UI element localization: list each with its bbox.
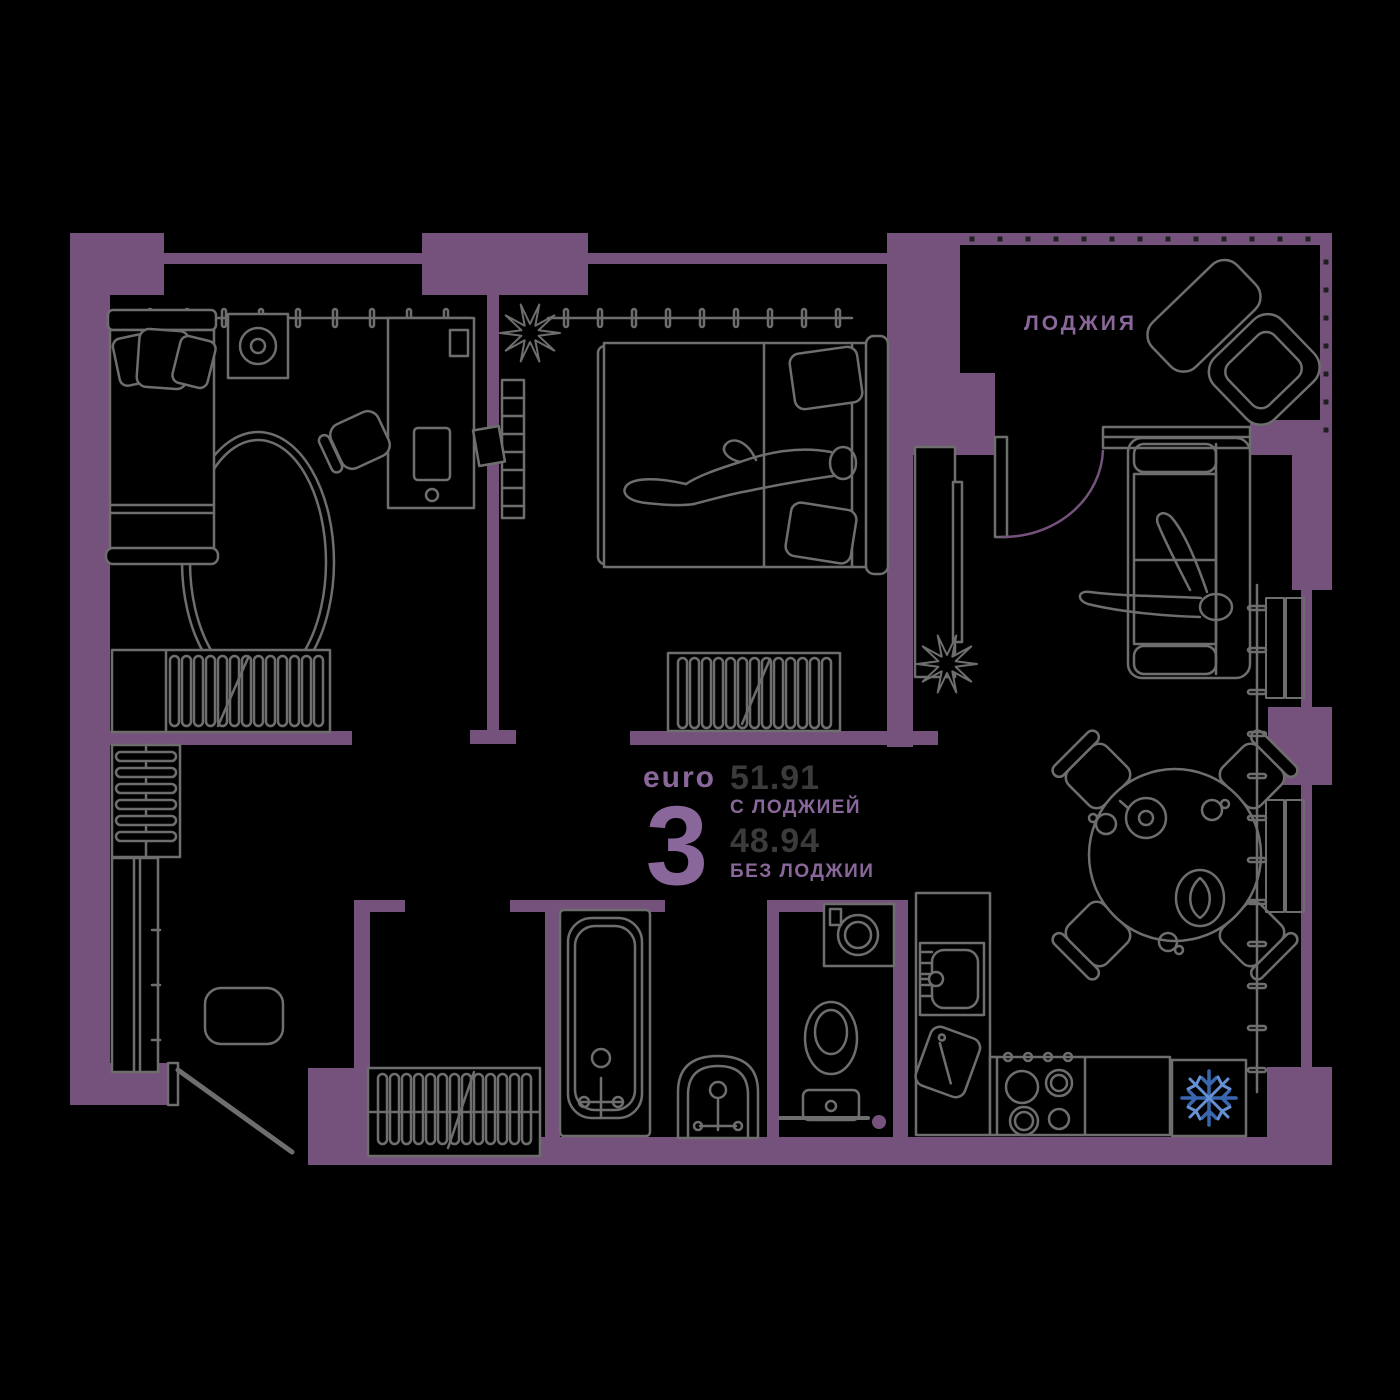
desk: [388, 318, 474, 508]
window-bedroom-1: [164, 253, 422, 264]
entry-door-leaf: [178, 1070, 292, 1152]
sofa: [1128, 438, 1250, 678]
window-living-upper: [1301, 590, 1312, 707]
loggia: [1140, 253, 1328, 433]
washing-machine: [824, 904, 894, 966]
floor-plan: ЛОДЖИЯ euro 3 С ЛОДЖИЕЙ БЕЗ ЛОДЖИИ 51.91…: [0, 0, 1400, 1400]
bedroom-1: [106, 309, 474, 732]
area-without-loggia-value: 48.94: [730, 822, 820, 860]
loggia-label: ЛОДЖИЯ: [1024, 312, 1137, 335]
loggia-door-arc: [1001, 450, 1103, 537]
bench: [205, 988, 283, 1044]
bed-single: [106, 310, 218, 564]
toilet-room: [780, 904, 894, 1120]
loggia-door-leaf: [995, 437, 1007, 537]
snowflake-icon: [1182, 1071, 1236, 1125]
wardrobe: [668, 653, 840, 731]
area-with-loggia-value: 51.91: [730, 759, 820, 797]
toilet: [803, 1002, 859, 1120]
bathroom: [560, 910, 758, 1138]
floor-plan-page: ЛОДЖИЯ euro 3 С ЛОДЖИЕЙ БЕЗ ЛОДЖИИ 51.91…: [0, 0, 1400, 1400]
area-without-loggia-caption: БЕЗ ЛОДЖИИ: [730, 861, 874, 882]
toilet-door-pivot: [872, 1115, 886, 1129]
plant-icon: [500, 305, 560, 362]
curtain-rod: [548, 309, 852, 327]
dining-table: [1050, 728, 1300, 982]
washbasin: [678, 1056, 758, 1138]
shoe-shelf: [112, 745, 180, 857]
fridge: [1172, 1060, 1246, 1136]
tall-cabinet: [112, 858, 160, 1072]
closet-room: [368, 1068, 540, 1156]
wardrobe: [112, 650, 330, 732]
window-bedroom-2: [588, 253, 887, 264]
stove-counter: [990, 1053, 1170, 1135]
bed-double: [598, 336, 888, 574]
furniture: [106, 253, 1328, 1156]
nightstand-lamp: [228, 314, 288, 378]
bedroom-2: [473, 305, 888, 732]
bathtub: [560, 910, 650, 1136]
area-with-loggia-caption: С ЛОДЖИЕЙ: [730, 796, 861, 818]
desk-chair: [315, 407, 393, 478]
window-living-lower: [1301, 785, 1312, 1067]
rooms-count: 3: [646, 783, 708, 908]
